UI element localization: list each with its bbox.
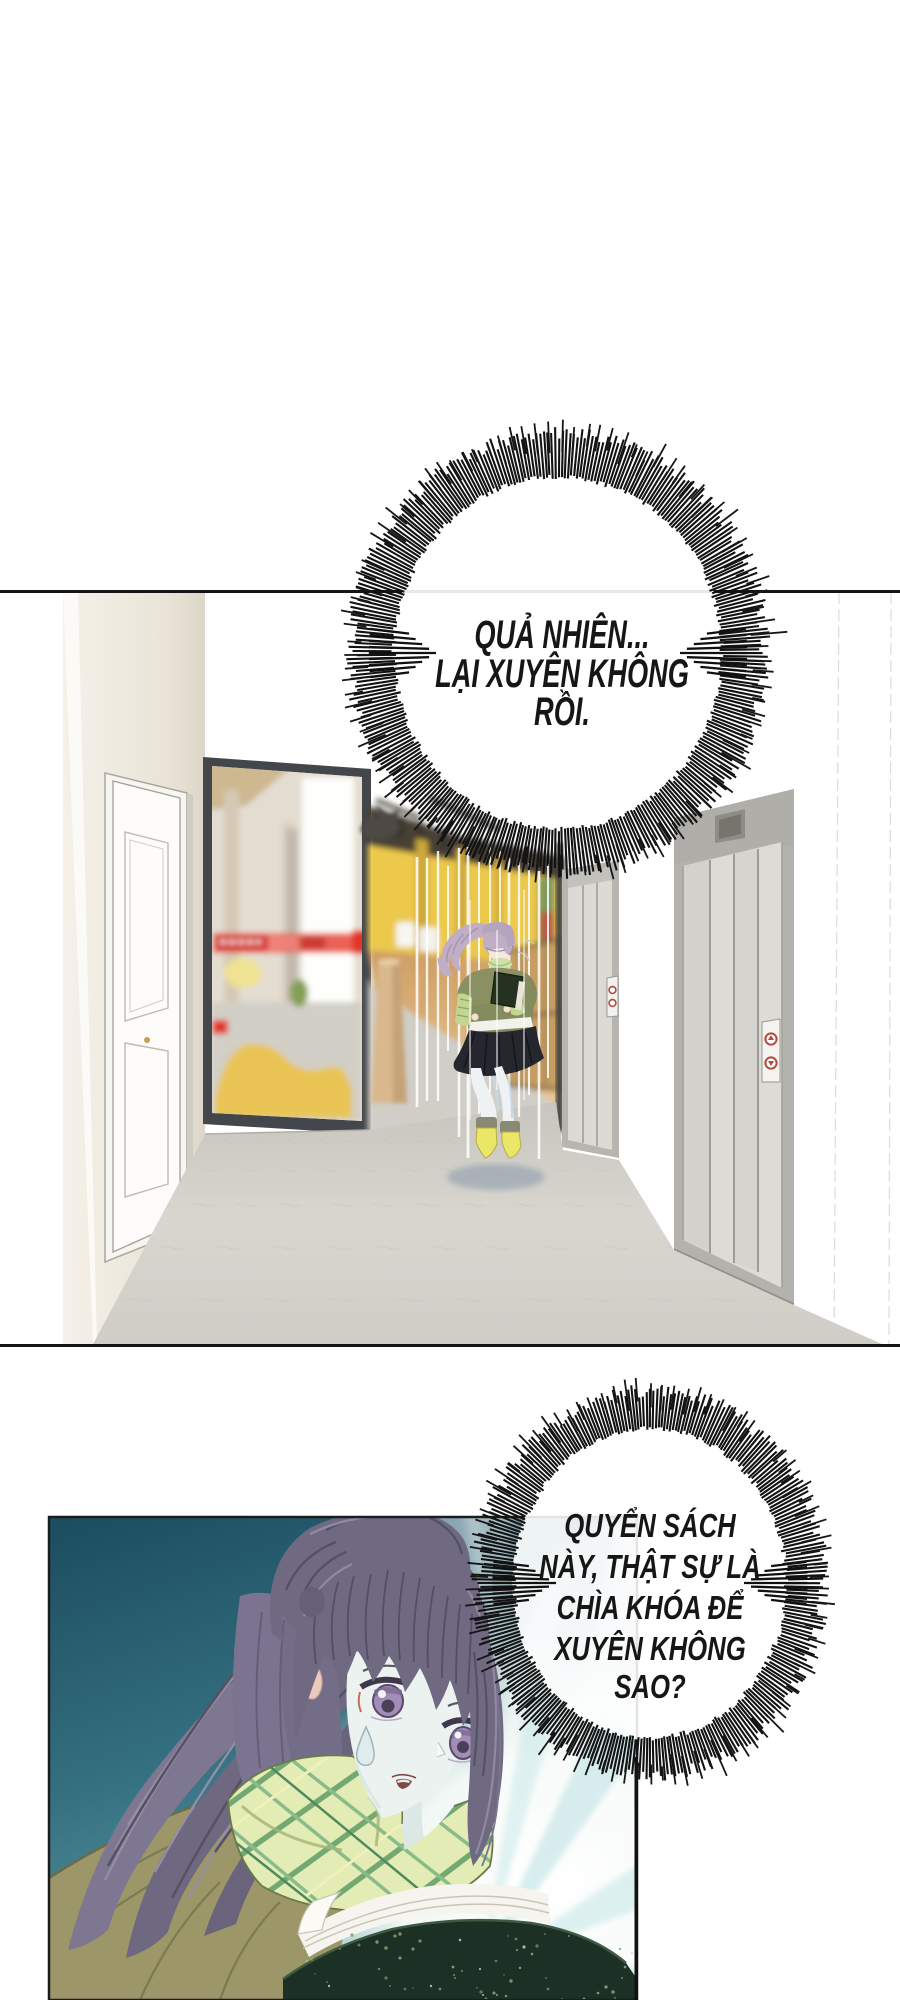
svg-text:NÀY, THẬT SỰ LÀ: NÀY, THẬT SỰ LÀ	[539, 1548, 760, 1586]
svg-text:QUYỂN SÁCH: QUYỂN SÁCH	[564, 1507, 736, 1545]
svg-text:CHÌA KHÓA ĐỂ: CHÌA KHÓA ĐỂ	[557, 1589, 745, 1627]
svg-text:XUYÊN KHÔNG: XUYÊN KHÔNG	[552, 1630, 745, 1668]
svg-text:QUẢ NHIÊN...: QUẢ NHIÊN...	[474, 611, 649, 658]
svg-text:RỒI.: RỒI.	[534, 688, 590, 735]
svg-text:SAO?: SAO?	[614, 1669, 685, 1706]
